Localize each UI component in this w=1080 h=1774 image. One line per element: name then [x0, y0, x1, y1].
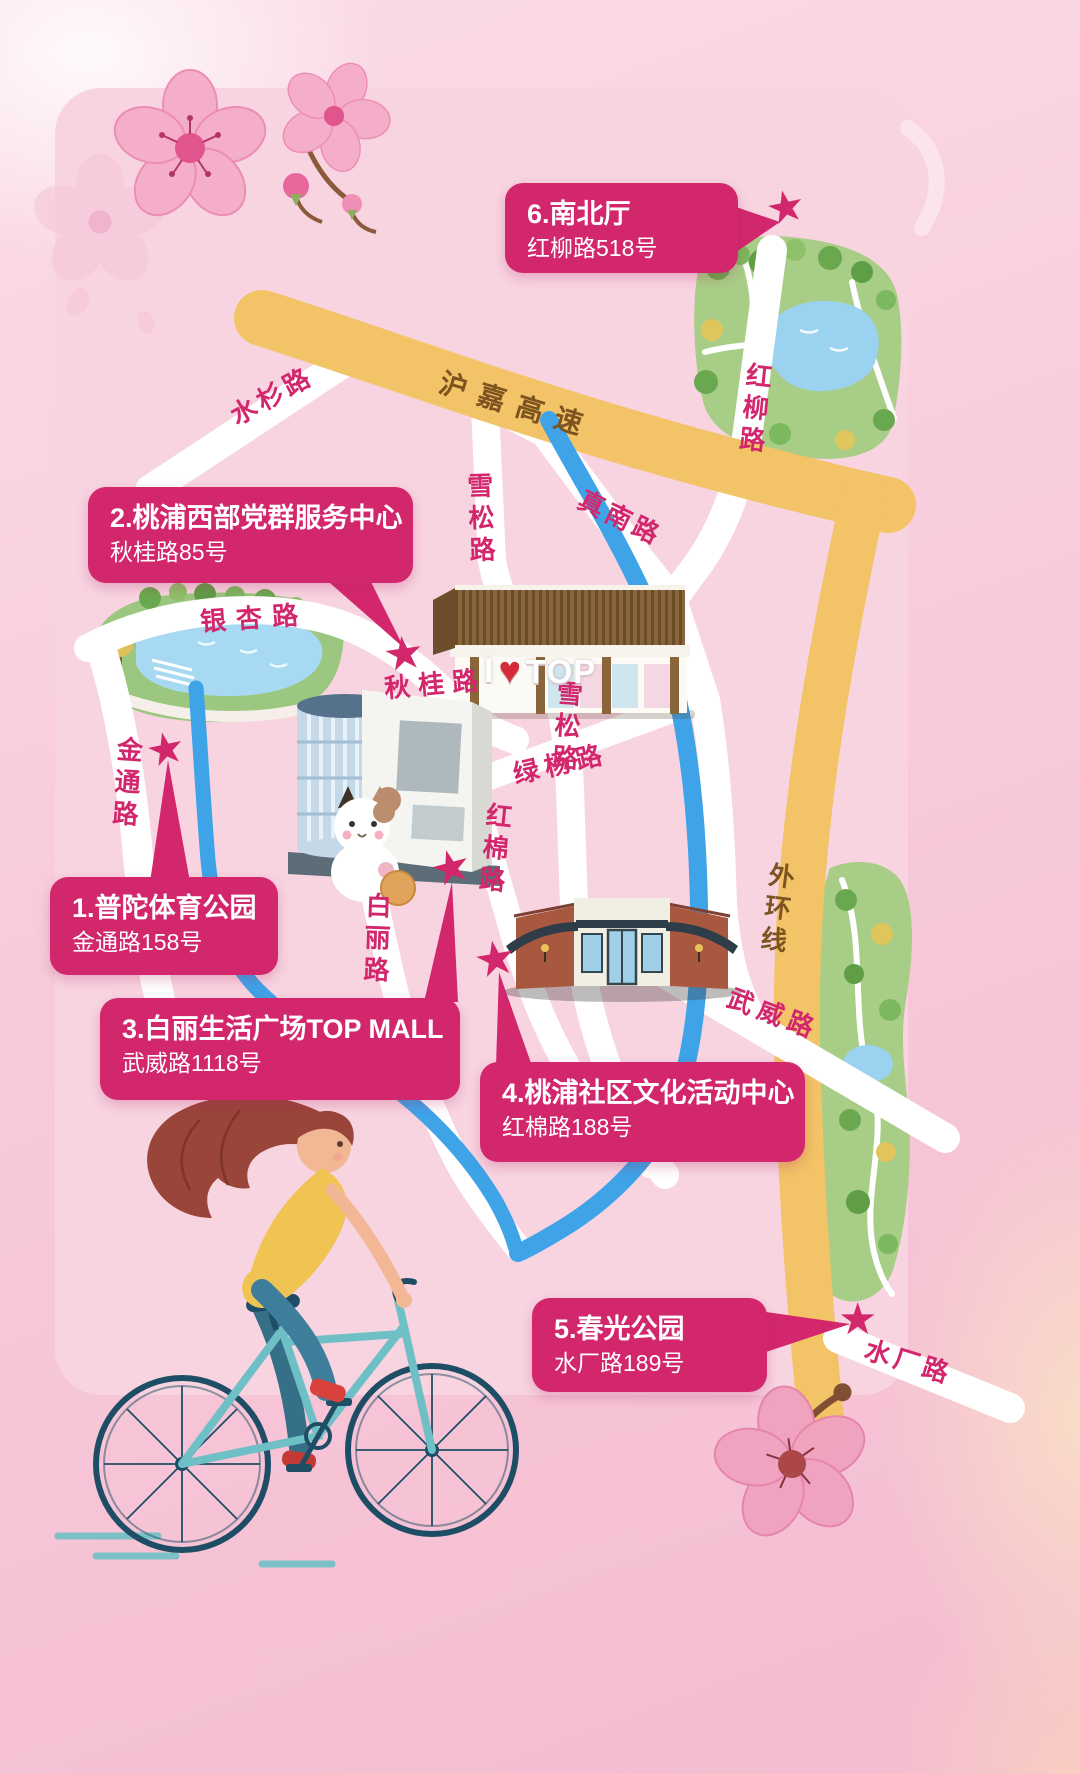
- road-label-xuesong-lower: 雪松路: [545, 679, 589, 777]
- callout-address: 金通路158号: [72, 926, 258, 958]
- sign-word-top: TOP: [526, 653, 596, 691]
- top-mall-sign: I ♥ TOP: [484, 650, 596, 693]
- callout-chunguang-park: 5.春光公园 水厂路189号: [532, 1298, 767, 1392]
- road-label-baili: 白丽路: [356, 891, 396, 988]
- heart-icon: ♥: [498, 650, 521, 693]
- callout-title: 5.春光公园: [554, 1311, 747, 1347]
- star-marker-2: ★: [380, 627, 427, 678]
- callout-address: 红棉路188号: [502, 1111, 785, 1143]
- callout-nanbei-hall: 6.南北厅 红柳路518号: [505, 183, 738, 273]
- callout-title: 2.桃浦西部党群服务中心: [110, 500, 393, 536]
- callout-address: 秋桂路85号: [110, 536, 393, 568]
- culture-center-illustration: [502, 898, 742, 1002]
- poster-map: 水杉路 沪嘉高速 红柳路 真南路 雪松路 银杏路 秋桂路 金通路 绿杨路 雪松路…: [0, 0, 1080, 1774]
- callout-title: 1.普陀体育公园: [72, 890, 258, 926]
- callout-culture-center: 4.桃浦社区文化活动中心 红棉路188号: [480, 1062, 805, 1162]
- road-label-xuesong-upper: 雪松路: [460, 471, 500, 568]
- callout-title: 3.白丽生活广场TOP MALL: [122, 1011, 440, 1047]
- callout-top-mall: 3.白丽生活广场TOP MALL 武威路1118号: [100, 998, 460, 1100]
- callout-taopu-party-center: 2.桃浦西部党群服务中心 秋桂路85号: [88, 487, 413, 583]
- callout-putuo-sports-park: 1.普陀体育公园 金通路158号: [50, 877, 278, 975]
- callout-title: 6.南北厅: [527, 196, 718, 232]
- road-label-yinxing: 银杏路: [199, 594, 309, 638]
- road-label-jintong: 金通路: [105, 735, 149, 833]
- star-marker-5: ★: [838, 1298, 877, 1342]
- bottom-flower-decoration: [699, 1375, 885, 1554]
- callout-address: 红柳路518号: [527, 232, 718, 264]
- star-marker-4: ★: [470, 933, 521, 988]
- callout-address: 武威路1118号: [122, 1047, 440, 1079]
- callout-title: 4.桃浦社区文化活动中心: [502, 1075, 785, 1111]
- sign-letter-i: I: [484, 652, 493, 691]
- callout-address: 水厂路189号: [554, 1347, 747, 1379]
